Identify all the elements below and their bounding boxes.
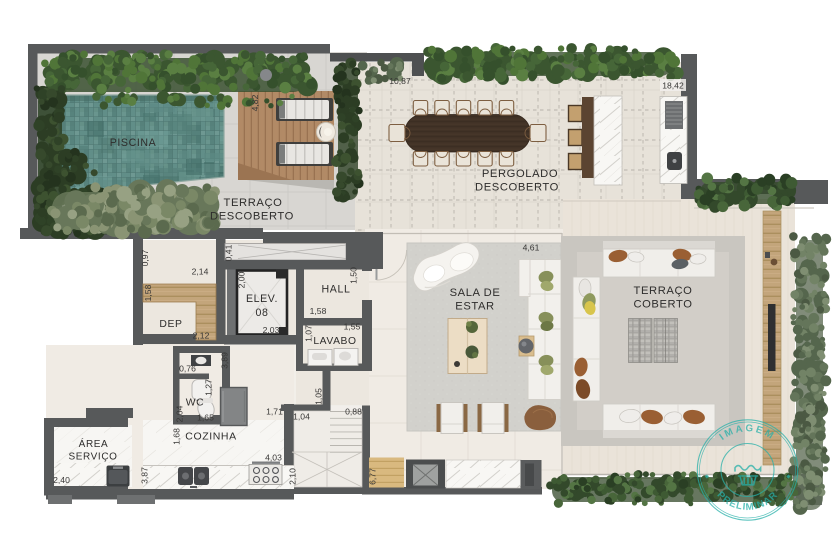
svg-text:WC: WC bbox=[186, 398, 205, 409]
svg-text:18,42: 18,42 bbox=[662, 81, 684, 91]
svg-text:1,58: 1,58 bbox=[143, 284, 153, 301]
svg-text:2,10: 2,10 bbox=[288, 468, 298, 485]
svg-text:PISCINA: PISCINA bbox=[110, 137, 157, 149]
svg-text:3,87: 3,87 bbox=[140, 467, 150, 484]
svg-text:0,76: 0,76 bbox=[179, 364, 196, 374]
svg-text:0,41: 0,41 bbox=[224, 244, 234, 261]
svg-text:6,77: 6,77 bbox=[368, 468, 378, 485]
svg-text:2,40: 2,40 bbox=[53, 475, 70, 485]
svg-text:1,68: 1,68 bbox=[172, 428, 182, 445]
svg-text:3,89: 3,89 bbox=[220, 352, 230, 369]
svg-text:2,03: 2,03 bbox=[263, 325, 280, 335]
svg-text:1,58: 1,58 bbox=[310, 306, 327, 316]
svg-text:1,07: 1,07 bbox=[304, 325, 314, 342]
svg-text:2,04: 2,04 bbox=[175, 405, 185, 422]
svg-text:DEP: DEP bbox=[159, 319, 182, 330]
svg-text:DESCOBERTO: DESCOBERTO bbox=[210, 211, 294, 223]
svg-text:ELEV.: ELEV. bbox=[246, 293, 278, 305]
svg-text:LAVABO: LAVABO bbox=[313, 336, 356, 347]
svg-text:1,27: 1,27 bbox=[204, 379, 214, 396]
svg-text:4,82: 4,82 bbox=[250, 94, 260, 111]
svg-text:08: 08 bbox=[256, 307, 269, 319]
svg-text:TERRAÇO: TERRAÇO bbox=[634, 285, 693, 297]
svg-text:1,71: 1,71 bbox=[266, 407, 283, 417]
svg-text:DESCOBERTO: DESCOBERTO bbox=[475, 182, 559, 194]
svg-text:TERRAÇO: TERRAÇO bbox=[224, 197, 283, 209]
svg-text:SERVIÇO: SERVIÇO bbox=[68, 452, 117, 463]
svg-text:1,05: 1,05 bbox=[314, 388, 324, 405]
svg-text:HALL: HALL bbox=[322, 284, 351, 296]
svg-text:1,65: 1,65 bbox=[197, 413, 214, 423]
svg-text:1,50: 1,50 bbox=[349, 267, 359, 284]
svg-text:SALA DE: SALA DE bbox=[450, 287, 501, 299]
svg-text:ÁREA: ÁREA bbox=[79, 437, 109, 450]
svg-text:0,88: 0,88 bbox=[345, 407, 362, 417]
svg-text:ESTAR: ESTAR bbox=[455, 301, 494, 313]
svg-text:4,61: 4,61 bbox=[523, 243, 540, 253]
svg-text:1,04: 1,04 bbox=[293, 412, 310, 422]
svg-text:0,97: 0,97 bbox=[140, 249, 150, 266]
svg-text:2,00: 2,00 bbox=[237, 271, 247, 288]
svg-text:COZINHA: COZINHA bbox=[185, 431, 236, 443]
svg-text:2,12: 2,12 bbox=[193, 331, 210, 341]
svg-text:PERGOLADO: PERGOLADO bbox=[482, 168, 558, 180]
svg-text:4,03: 4,03 bbox=[265, 453, 282, 463]
svg-text:10,87: 10,87 bbox=[389, 76, 411, 86]
svg-text:2,14: 2,14 bbox=[192, 267, 209, 277]
svg-text:COBERTO: COBERTO bbox=[633, 299, 692, 311]
svg-text:1,55: 1,55 bbox=[344, 322, 361, 332]
